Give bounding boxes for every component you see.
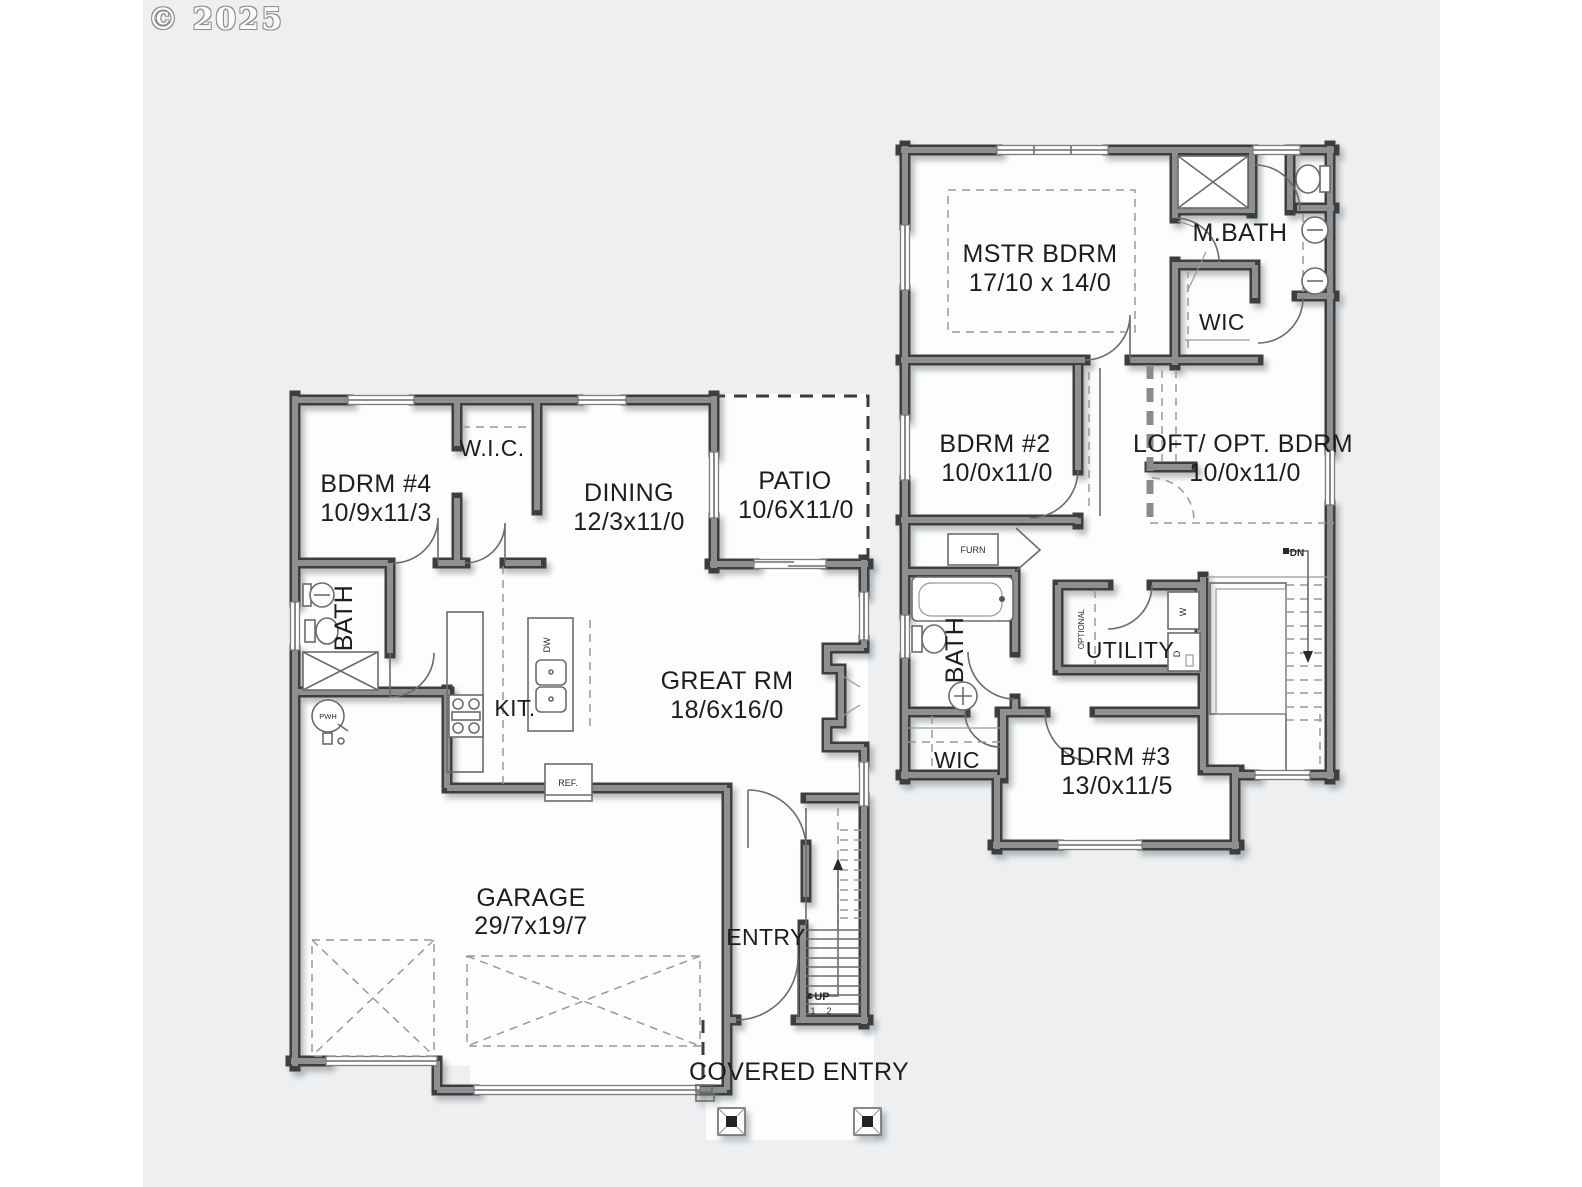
- first-floor: BDRM #4 10/9x11/3 W.I.C. DINING 12/3x11/…: [291, 394, 910, 1140]
- sink-basin-2: [536, 687, 566, 712]
- optional-label: OPTIONAL: [1077, 608, 1086, 649]
- dining-label: DINING: [584, 479, 674, 507]
- kitchen-label: KIT.: [494, 695, 535, 721]
- floor-plan-page: © 2025: [0, 0, 1582, 1187]
- mbath-toilet-tank: [1320, 166, 1330, 192]
- bath1-label: BATH: [330, 585, 358, 651]
- patio-label: PATIO: [758, 467, 831, 495]
- mstr-bdrm-label: MSTR BDRM: [963, 240, 1118, 268]
- mbath-toilet-bowl: [1296, 165, 1320, 193]
- wic3-label: WIC: [934, 747, 980, 773]
- sink-basin-1: [536, 660, 566, 685]
- bdrm3-dims: 13/0x11/5: [1061, 772, 1173, 800]
- bdrm3-label: BDRM #3: [1059, 743, 1170, 771]
- refrigerator-label: REF.: [558, 778, 578, 788]
- floor-plan-drawing: BDRM #4 10/9x11/3 W.I.C. DINING 12/3x11/…: [0, 0, 1582, 1187]
- up-label: UP: [814, 991, 829, 1003]
- bdrm2-label: BDRM #2: [939, 430, 1050, 458]
- furnace-label: FURN: [961, 545, 986, 555]
- bath2-toilet-tank: [912, 626, 922, 652]
- water-heater-label: PWH: [319, 712, 337, 721]
- master-wic-label: WIC: [1199, 309, 1245, 335]
- bdrm4-dims: 10/9x11/3: [320, 499, 432, 527]
- bath1-toilet-tank: [305, 620, 315, 642]
- loft-label: LOFT/ OPT. BDRM: [1133, 430, 1353, 458]
- dishwasher-label: DW: [542, 637, 552, 652]
- utility-label: UTILITY: [1086, 637, 1174, 663]
- garage-dims: 29/7x19/7: [474, 912, 587, 940]
- step-2-label: 2: [826, 1006, 831, 1016]
- bath2-label: BATH: [941, 617, 969, 683]
- garage-label: GARAGE: [476, 884, 585, 912]
- step-1-label: 1: [810, 1006, 815, 1016]
- patio-dims: 10/6X11/0: [738, 496, 854, 524]
- mstr-bdrm-dims: 17/10 x 14/0: [969, 269, 1111, 297]
- dining-dims: 12/3x11/0: [573, 508, 685, 536]
- mbath-label: M.BATH: [1193, 219, 1288, 247]
- bdrm4-label: BDRM #4: [320, 470, 431, 498]
- bdrm2-dims: 10/0x11/0: [941, 459, 1053, 487]
- covered-entry-label: COVERED ENTRY: [689, 1058, 909, 1086]
- great-room-dims: 18/6x16/0: [670, 696, 783, 724]
- dn-label: DN: [1290, 548, 1304, 559]
- washer-label: W: [1178, 607, 1188, 616]
- great-room-label: GREAT RM: [661, 667, 794, 695]
- wic-label: W.I.C.: [459, 435, 524, 461]
- dryer-label: D: [1172, 650, 1182, 657]
- second-floor: MSTR BDRM 17/10 x 14/0 M.BATH WIC BDRM #…: [901, 146, 1353, 850]
- entry-label: ENTRY: [726, 924, 806, 950]
- loft-dims: 10/0x11/0: [1189, 459, 1301, 487]
